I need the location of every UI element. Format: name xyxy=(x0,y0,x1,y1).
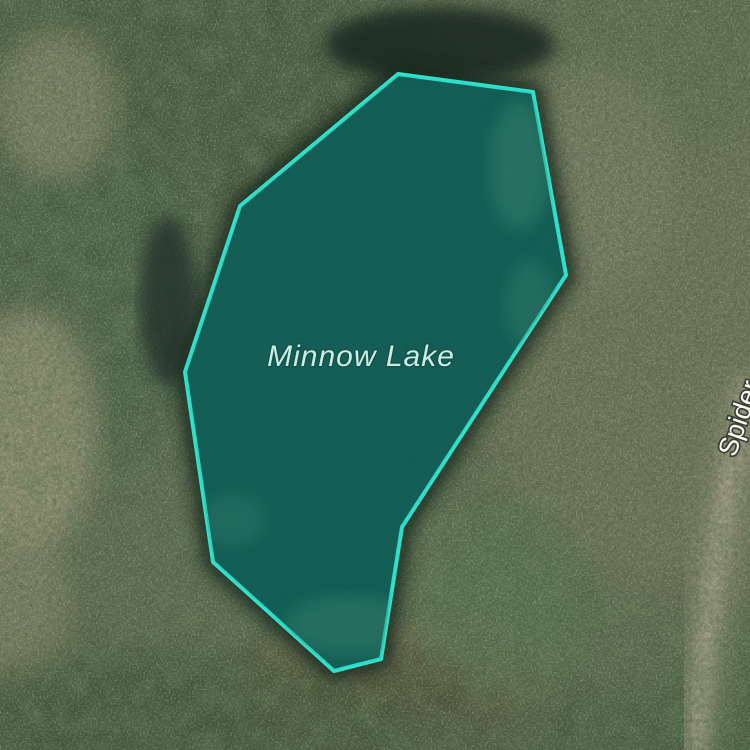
map-svg: Minnow Lake Spider xyxy=(0,0,750,750)
lake-label: Minnow Lake xyxy=(267,340,455,373)
satellite-map-canvas[interactable]: Minnow Lake Spider xyxy=(0,0,750,750)
